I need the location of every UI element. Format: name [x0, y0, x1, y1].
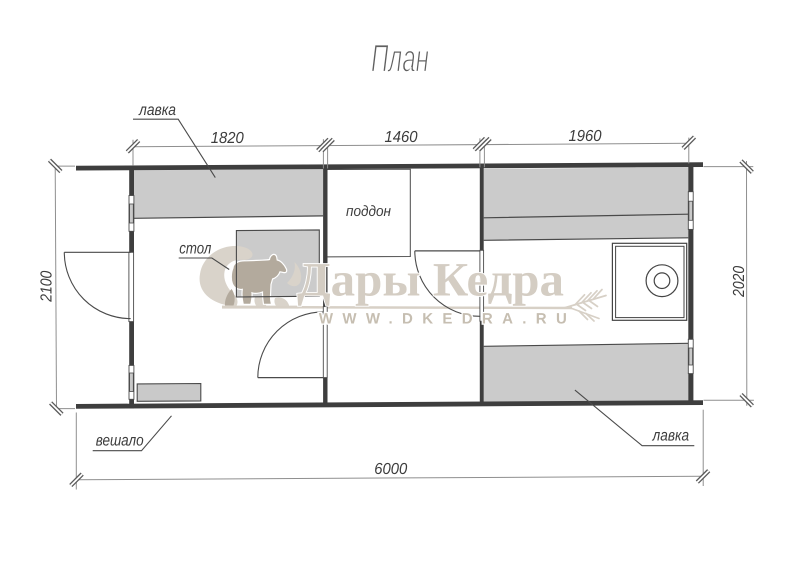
svg-text:6000: 6000: [374, 461, 407, 478]
svg-text:поддон: поддон: [346, 203, 391, 220]
svg-text:1960: 1960: [569, 128, 602, 145]
svg-text:1460: 1460: [385, 129, 418, 146]
svg-text:Дары Кедра: Дары Кедра: [297, 254, 564, 307]
svg-text:стол: стол: [179, 240, 211, 257]
svg-text:лавка: лавка: [652, 428, 689, 445]
svg-text:лавка: лавка: [138, 102, 176, 119]
svg-text:WWW.DKEDRA.RU: WWW.DKEDRA.RU: [319, 311, 576, 328]
svg-text:2100: 2100: [39, 271, 56, 303]
svg-text:вешало: вешало: [96, 432, 144, 449]
svg-text:1820: 1820: [211, 130, 244, 147]
svg-text:План: План: [371, 38, 429, 81]
svg-text:2020: 2020: [731, 266, 748, 298]
